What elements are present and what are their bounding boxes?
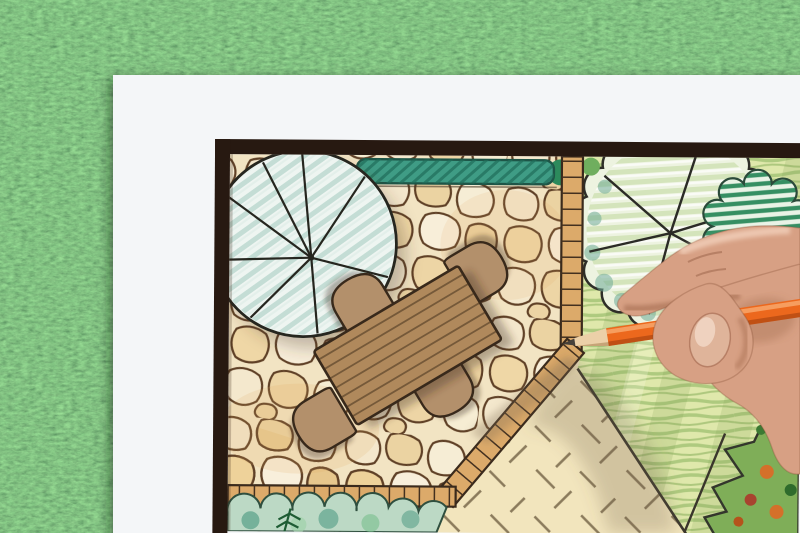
frame-left-bar xyxy=(212,139,230,533)
hedge-hatch xyxy=(357,159,554,184)
lawn-tuft xyxy=(582,158,600,176)
scene-canvas xyxy=(0,0,800,533)
tree-left-trunk-dot xyxy=(308,255,314,261)
photo-garden-plan-sketch xyxy=(0,0,800,533)
tile-border-vertical xyxy=(561,156,583,350)
hedge-strip xyxy=(357,159,557,187)
